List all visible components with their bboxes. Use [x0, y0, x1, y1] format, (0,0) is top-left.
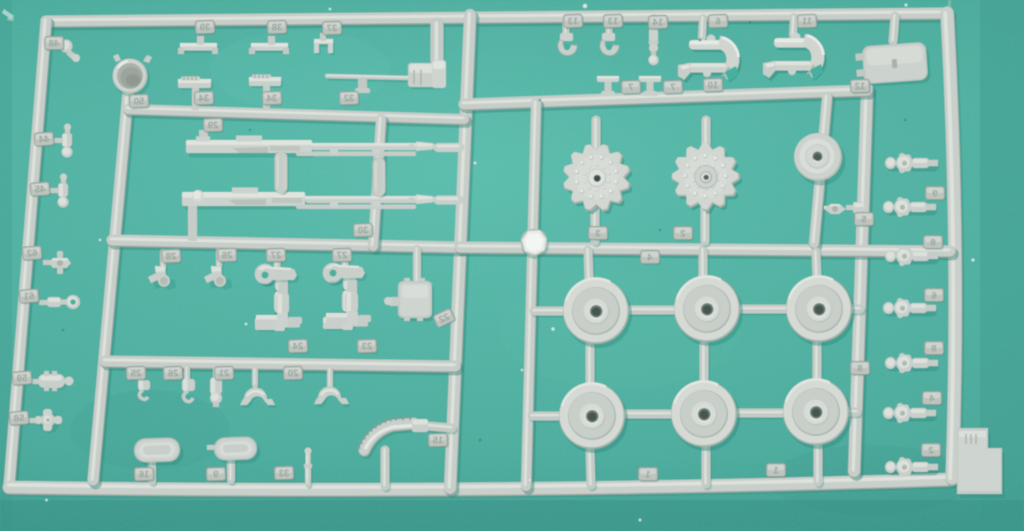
svg-text:9: 9	[213, 469, 219, 480]
svg-text:26: 26	[222, 250, 233, 261]
svg-text:4: 4	[647, 252, 653, 263]
svg-text:13: 13	[568, 16, 579, 27]
svg-text:23: 23	[362, 341, 373, 352]
svg-text:1: 1	[645, 469, 651, 480]
svg-text:61: 61	[23, 291, 35, 303]
svg-text:32: 32	[344, 93, 355, 104]
svg-text:29: 29	[208, 120, 219, 131]
svg-text:37: 37	[327, 23, 338, 34]
svg-text:2: 2	[680, 228, 685, 239]
svg-text:59: 59	[16, 373, 27, 385]
svg-text:50: 50	[134, 96, 145, 107]
svg-text:44: 44	[38, 134, 50, 146]
svg-text:27: 27	[271, 250, 282, 261]
svg-text:45: 45	[34, 184, 46, 196]
svg-text:62: 62	[26, 248, 37, 260]
svg-text:8: 8	[857, 363, 862, 374]
svg-text:5: 5	[861, 214, 867, 225]
svg-text:26: 26	[168, 368, 179, 379]
svg-text:2: 2	[928, 445, 933, 456]
svg-text:25: 25	[130, 368, 142, 379]
svg-text:11: 11	[801, 16, 812, 27]
svg-text:20: 20	[288, 368, 299, 379]
svg-text:34: 34	[266, 93, 278, 104]
svg-text:10: 10	[708, 80, 719, 91]
svg-text:27: 27	[337, 250, 348, 261]
svg-text:6: 6	[931, 290, 936, 301]
svg-text:3: 3	[595, 228, 600, 239]
svg-text:14: 14	[652, 17, 664, 28]
svg-text:16: 16	[139, 469, 150, 480]
svg-text:21: 21	[218, 368, 230, 379]
svg-text:39: 39	[200, 22, 211, 33]
svg-text:28: 28	[166, 251, 177, 262]
svg-text:8: 8	[930, 237, 935, 248]
svg-text:48: 48	[49, 38, 60, 49]
svg-text:38: 38	[272, 22, 283, 33]
svg-text:30: 30	[358, 225, 369, 236]
svg-text:58: 58	[13, 413, 24, 425]
svg-text:34: 34	[198, 93, 210, 104]
svg-text:9: 9	[932, 188, 937, 199]
svg-text:13: 13	[608, 16, 619, 27]
svg-text:4: 4	[929, 393, 935, 404]
svg-text:6: 6	[715, 16, 721, 27]
svg-text:8: 8	[931, 343, 936, 354]
svg-text:1: 1	[773, 465, 779, 476]
svg-text:7: 7	[670, 82, 676, 93]
svg-text:12: 12	[855, 81, 866, 92]
svg-text:7: 7	[628, 82, 634, 93]
svg-text:15: 15	[432, 435, 444, 446]
svg-text:24: 24	[292, 341, 304, 352]
svg-text:33: 33	[279, 468, 290, 479]
